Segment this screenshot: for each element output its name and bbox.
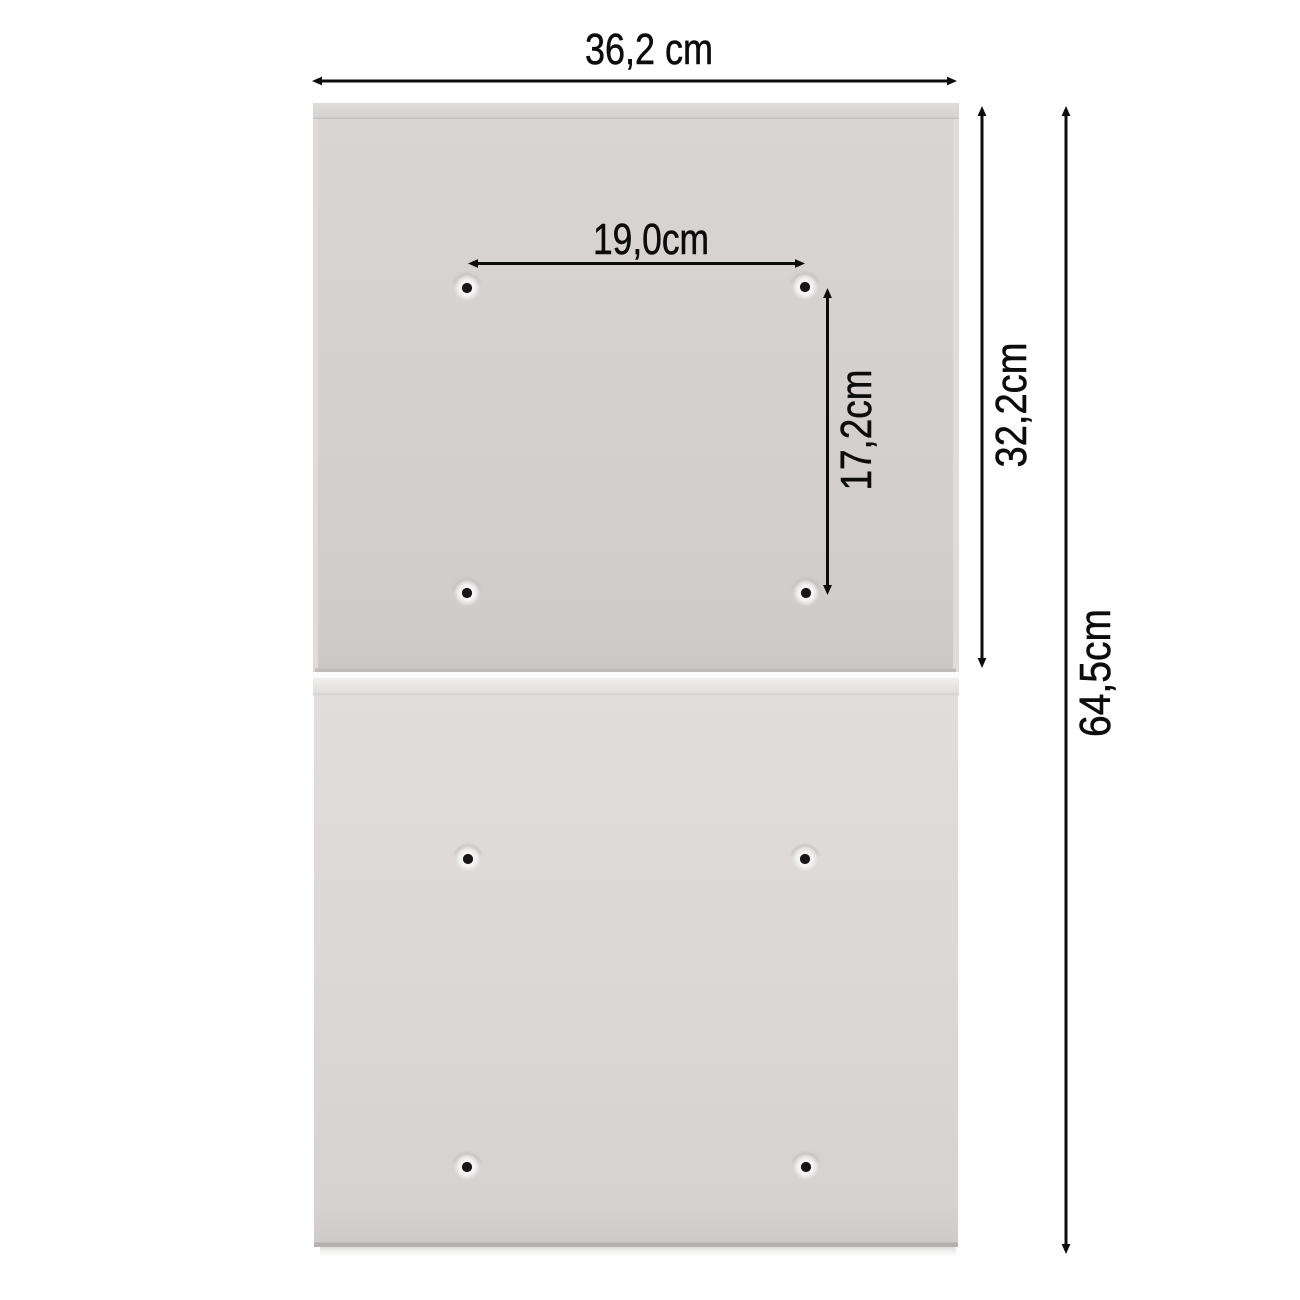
svg-text:64,5cm: 64,5cm <box>1071 609 1120 737</box>
svg-text:17,2cm: 17,2cm <box>832 370 881 491</box>
svg-text:19,0cm: 19,0cm <box>593 215 709 264</box>
svg-text:36,2 cm: 36,2 cm <box>585 25 713 74</box>
svg-text:32,2cm: 32,2cm <box>987 343 1036 468</box>
